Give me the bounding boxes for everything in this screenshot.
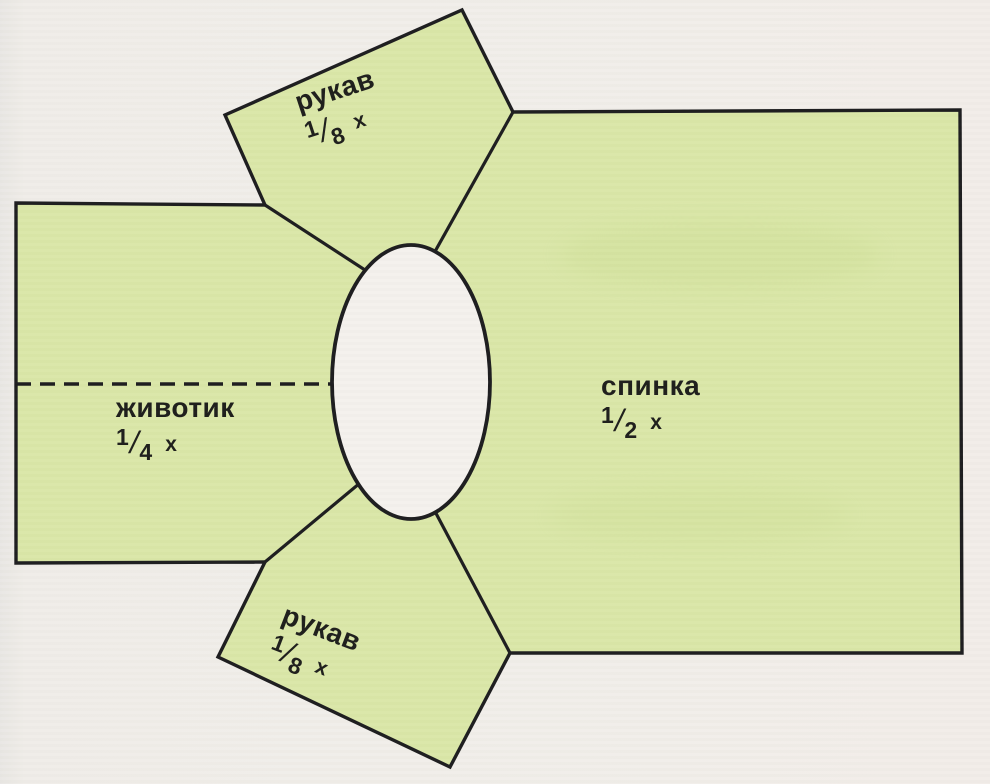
fraction-denominator: 8 xyxy=(328,123,348,151)
fraction-denominator: 4 xyxy=(139,440,152,466)
fraction-suffix: x xyxy=(312,655,331,681)
fraction-numerator: 1 xyxy=(116,425,129,451)
scan-artifact xyxy=(560,221,880,289)
scanned-pattern-page: рукав 1/8x животик 1/4x спинка 1/2x рука… xyxy=(0,0,990,784)
piece-fraction: 1/2x xyxy=(601,404,700,439)
fraction-denominator: 2 xyxy=(624,418,637,444)
label-belly: животик 1/4x xyxy=(116,392,235,461)
scan-artifact xyxy=(550,487,850,543)
fraction-suffix: x xyxy=(165,433,177,457)
fraction-suffix: x xyxy=(650,411,662,435)
neck-opening xyxy=(332,245,490,519)
piece-name: спинка xyxy=(601,370,700,401)
piece-name: животик xyxy=(116,392,235,423)
piece-fraction: 1/4x xyxy=(116,426,235,461)
fraction-numerator: 1 xyxy=(601,403,614,429)
fraction-slash: / xyxy=(318,113,330,151)
fraction-suffix: x xyxy=(351,109,369,135)
label-back: спинка 1/2x xyxy=(601,370,700,439)
